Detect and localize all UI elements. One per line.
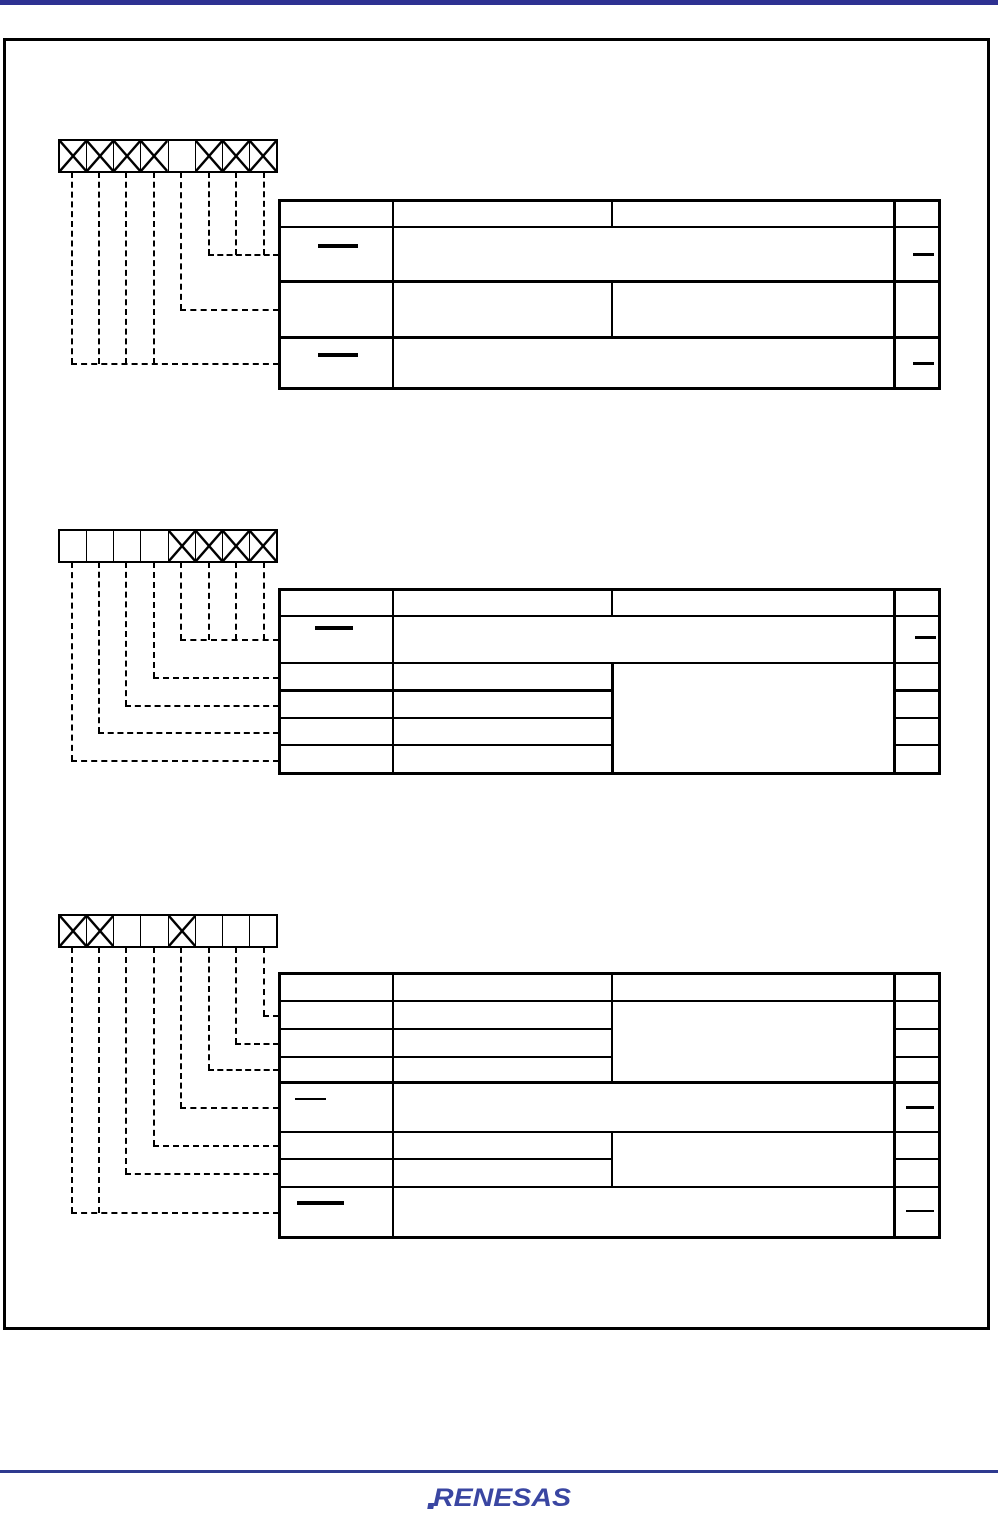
connector-line bbox=[180, 562, 182, 640]
dash-placeholder bbox=[318, 353, 358, 357]
grid-line bbox=[278, 615, 941, 617]
connector-line bbox=[125, 1173, 279, 1175]
grid-line bbox=[278, 662, 941, 664]
x-mark-icon bbox=[223, 531, 249, 561]
grid-line bbox=[938, 199, 941, 390]
grid-line bbox=[278, 1236, 941, 1239]
connector-line bbox=[235, 947, 237, 1044]
grid-line bbox=[278, 280, 941, 283]
bit-box bbox=[223, 531, 250, 561]
grid-line bbox=[278, 1028, 613, 1030]
grid-line bbox=[893, 972, 896, 1239]
bit-box bbox=[60, 531, 87, 561]
bit-box bbox=[250, 916, 276, 946]
x-mark-icon bbox=[196, 531, 222, 561]
connector-line bbox=[71, 172, 73, 364]
bit-box bbox=[250, 141, 276, 171]
connector-line bbox=[235, 562, 237, 640]
connector-line bbox=[263, 172, 265, 255]
grid-line bbox=[938, 972, 941, 1239]
connector-line bbox=[263, 562, 265, 640]
x-mark-icon bbox=[250, 141, 276, 171]
register-2-bit-boxes bbox=[58, 529, 278, 563]
dash-placeholder bbox=[295, 1098, 326, 1100]
dash-placeholder bbox=[913, 253, 934, 256]
grid-line bbox=[278, 226, 941, 228]
bit-box bbox=[114, 916, 141, 946]
bit-box bbox=[114, 141, 141, 171]
bit-box bbox=[250, 531, 276, 561]
bit-box bbox=[141, 531, 168, 561]
connector-line bbox=[98, 562, 100, 733]
connector-line bbox=[208, 1069, 279, 1071]
grid-line bbox=[278, 972, 281, 1239]
grid-line bbox=[278, 588, 281, 775]
grid-line bbox=[278, 1081, 941, 1084]
connector-line bbox=[208, 172, 210, 255]
grid-line bbox=[278, 588, 941, 591]
connector-line bbox=[153, 677, 279, 679]
page-frame bbox=[3, 38, 990, 1330]
x-mark-icon bbox=[196, 141, 222, 171]
grid-line bbox=[278, 744, 613, 746]
connector-line bbox=[125, 947, 127, 1174]
connector-line bbox=[180, 309, 279, 311]
x-mark-icon bbox=[87, 916, 113, 946]
connector-line bbox=[208, 947, 210, 1070]
connector-line bbox=[125, 172, 127, 364]
grid-line bbox=[611, 662, 614, 775]
bit-box bbox=[196, 531, 223, 561]
grid-line bbox=[893, 689, 941, 692]
grid-line bbox=[278, 387, 941, 390]
connector-line bbox=[235, 172, 237, 255]
bit-box bbox=[60, 141, 87, 171]
bit-box bbox=[87, 531, 114, 561]
grid-line bbox=[278, 717, 613, 719]
grid-line bbox=[893, 744, 941, 746]
grid-line bbox=[611, 1131, 613, 1188]
connector-line bbox=[263, 1015, 279, 1017]
connector-line bbox=[153, 172, 155, 364]
grid-line bbox=[392, 588, 394, 775]
dash-placeholder bbox=[913, 362, 934, 365]
register-1-bit-boxes bbox=[58, 139, 278, 173]
grid-line bbox=[893, 717, 941, 719]
dash-placeholder bbox=[297, 1201, 344, 1205]
connector-line bbox=[71, 947, 73, 1213]
x-mark-icon bbox=[141, 141, 167, 171]
grid-line bbox=[278, 1131, 941, 1133]
footer-rule bbox=[0, 1470, 998, 1473]
bit-box bbox=[87, 141, 114, 171]
x-mark-icon bbox=[169, 916, 195, 946]
connector-line bbox=[180, 639, 279, 641]
grid-line bbox=[278, 1056, 613, 1058]
bit-box bbox=[196, 141, 223, 171]
connector-line bbox=[71, 1212, 279, 1214]
connector-line bbox=[98, 732, 279, 734]
grid-line bbox=[893, 1056, 941, 1058]
connector-line bbox=[180, 1107, 279, 1109]
connector-line bbox=[71, 363, 279, 365]
grid-line bbox=[938, 588, 941, 775]
grid-line bbox=[392, 199, 394, 390]
grid-line bbox=[611, 280, 613, 338]
connector-line bbox=[98, 172, 100, 364]
connector-line bbox=[125, 562, 127, 706]
x-mark-icon bbox=[60, 916, 86, 946]
document-page: RENESAS bbox=[0, 0, 998, 1513]
grid-line bbox=[278, 1186, 941, 1188]
bit-box bbox=[169, 916, 196, 946]
bit-box bbox=[169, 531, 196, 561]
grid-line bbox=[611, 199, 613, 228]
renesas-logo: RENESAS bbox=[426, 1482, 572, 1512]
x-mark-icon bbox=[169, 531, 195, 561]
connector-line bbox=[153, 1145, 279, 1147]
bit-box bbox=[223, 916, 250, 946]
bit-box bbox=[114, 531, 141, 561]
connector-line bbox=[208, 254, 279, 256]
grid-line bbox=[392, 972, 394, 1239]
dash-placeholder bbox=[318, 244, 358, 248]
connector-line bbox=[263, 947, 265, 1016]
x-mark-icon bbox=[60, 141, 86, 171]
dash-placeholder bbox=[315, 626, 353, 630]
grid-line bbox=[278, 1000, 941, 1002]
register-3-bit-boxes bbox=[58, 914, 278, 948]
connector-line bbox=[71, 562, 73, 761]
connector-line bbox=[153, 947, 155, 1146]
bit-box bbox=[223, 141, 250, 171]
grid-line bbox=[611, 972, 613, 1083]
grid-line bbox=[278, 972, 941, 975]
connector-line bbox=[180, 947, 182, 1108]
grid-line bbox=[278, 772, 941, 775]
bit-box bbox=[141, 916, 168, 946]
grid-line bbox=[893, 1028, 941, 1030]
grid-line bbox=[278, 199, 941, 202]
grid-line bbox=[278, 199, 281, 390]
dash-placeholder bbox=[906, 1106, 934, 1109]
grid-line bbox=[893, 199, 896, 390]
bit-box bbox=[196, 916, 223, 946]
x-mark-icon bbox=[250, 531, 276, 561]
dash-placeholder bbox=[915, 636, 936, 639]
grid-line bbox=[893, 1158, 941, 1160]
connector-line bbox=[98, 947, 100, 1213]
bit-box bbox=[87, 916, 114, 946]
connector-line bbox=[180, 172, 182, 310]
connector-line bbox=[125, 705, 279, 707]
connector-line bbox=[208, 562, 210, 640]
x-mark-icon bbox=[223, 141, 249, 171]
x-mark-icon bbox=[114, 141, 140, 171]
bit-box bbox=[141, 141, 168, 171]
bit-box bbox=[60, 916, 87, 946]
x-mark-icon bbox=[87, 141, 113, 171]
bit-box bbox=[169, 141, 196, 171]
connector-line bbox=[71, 760, 279, 762]
renesas-logo-graphic: RENESAS bbox=[426, 1482, 572, 1512]
renesas-logo-text: RENESAS bbox=[433, 1484, 571, 1512]
grid-line bbox=[278, 689, 613, 692]
grid-line bbox=[278, 1158, 613, 1160]
grid-line bbox=[611, 588, 613, 617]
connector-line bbox=[235, 1043, 279, 1045]
grid-line bbox=[893, 588, 896, 775]
top-accent-bar bbox=[0, 0, 998, 5]
dash-placeholder bbox=[906, 1210, 934, 1212]
connector-line bbox=[153, 562, 155, 678]
grid-line bbox=[278, 336, 941, 339]
